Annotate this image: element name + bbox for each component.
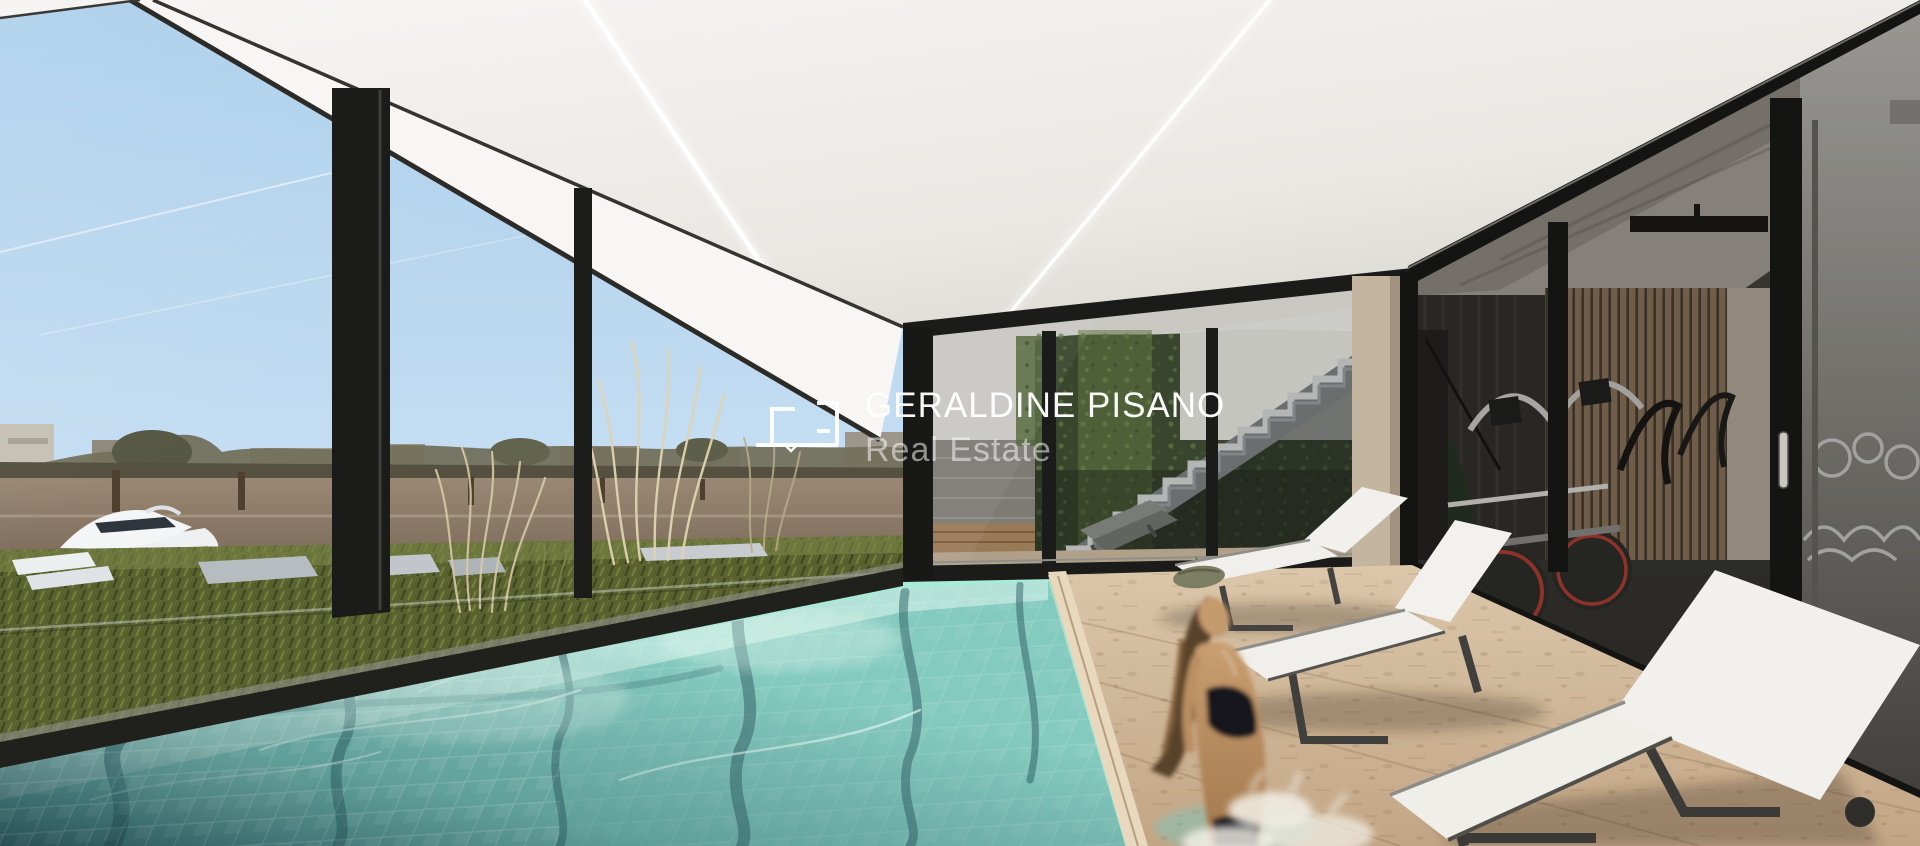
- scene-render: [0, 0, 1920, 846]
- real-estate-photo: GERALDINE PISANO Real Estate: [0, 0, 1920, 846]
- glass-door-handle: [1779, 432, 1788, 488]
